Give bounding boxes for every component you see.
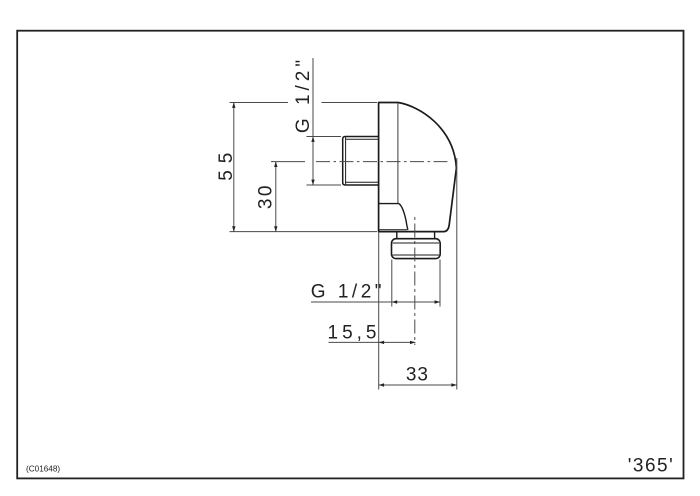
svg-text:'365': '365'	[628, 456, 674, 477]
svg-text:15,5: 15,5	[328, 323, 381, 344]
svg-text:G 1/2": G 1/2"	[311, 282, 385, 303]
svg-text:(C01648): (C01648)	[26, 465, 60, 474]
svg-text:G 1/2": G 1/2"	[293, 56, 314, 133]
svg-text:30: 30	[255, 183, 276, 209]
svg-text:55: 55	[216, 146, 237, 181]
svg-text:33: 33	[406, 365, 429, 386]
